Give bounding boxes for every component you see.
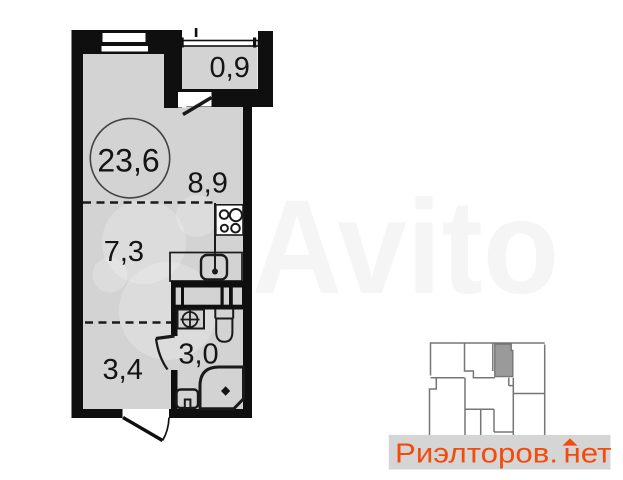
svg-text:23,6: 23,6 (97, 143, 159, 179)
svg-text:8,9: 8,9 (188, 168, 228, 200)
svg-text:0,9: 0,9 (210, 52, 250, 84)
svg-text:Риэлторов.: Риэлторов. (395, 437, 558, 468)
svg-text:3,4: 3,4 (103, 354, 143, 386)
svg-text:7,3: 7,3 (104, 236, 144, 268)
svg-text:3,0: 3,0 (178, 339, 218, 371)
svg-text:Avito: Avito (252, 173, 559, 322)
